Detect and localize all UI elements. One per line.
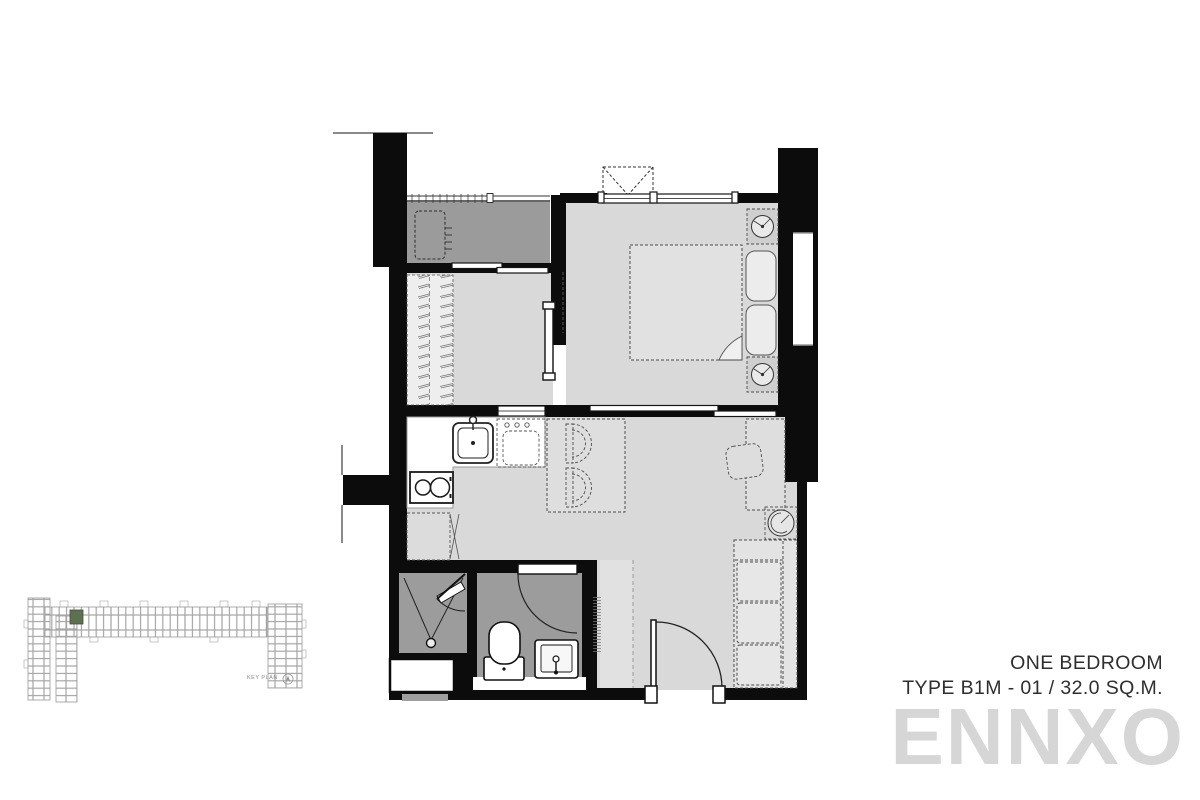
wall-shaft-window <box>793 233 813 345</box>
balcony-floor <box>407 200 550 267</box>
ceiling-ac-icon <box>603 167 653 195</box>
watermark-logo: ENNXO <box>891 697 1186 777</box>
entry-floor <box>600 560 633 690</box>
dining-table-icon <box>547 419 625 512</box>
bedroom-sliding-door <box>543 302 555 380</box>
nightstand-icon <box>747 357 778 392</box>
vanity-basin-icon <box>535 640 578 678</box>
unit-title: ONE BEDROOM <box>902 651 1163 676</box>
floorplan-page: ONE BEDROOM TYPE B1M - 01 / 32.0 SQ.M. E… <box>0 0 1200 800</box>
sofa-icon <box>734 540 797 688</box>
key-plan-unit-highlight <box>70 610 83 624</box>
wardrobe-icon <box>407 275 453 405</box>
key-plan-graphic <box>24 598 306 702</box>
sink-icon <box>453 417 493 464</box>
dining <box>547 419 625 512</box>
bedroom-window <box>598 192 738 203</box>
kitchen-pass-window <box>498 406 545 416</box>
stove-icon <box>410 472 453 503</box>
toilet-icon <box>484 622 524 680</box>
nightstand-icon <box>747 209 778 244</box>
key-plan-label: KEY PLAN <box>247 675 278 681</box>
bathroom <box>390 564 586 701</box>
desk-chair-icon <box>725 443 764 481</box>
